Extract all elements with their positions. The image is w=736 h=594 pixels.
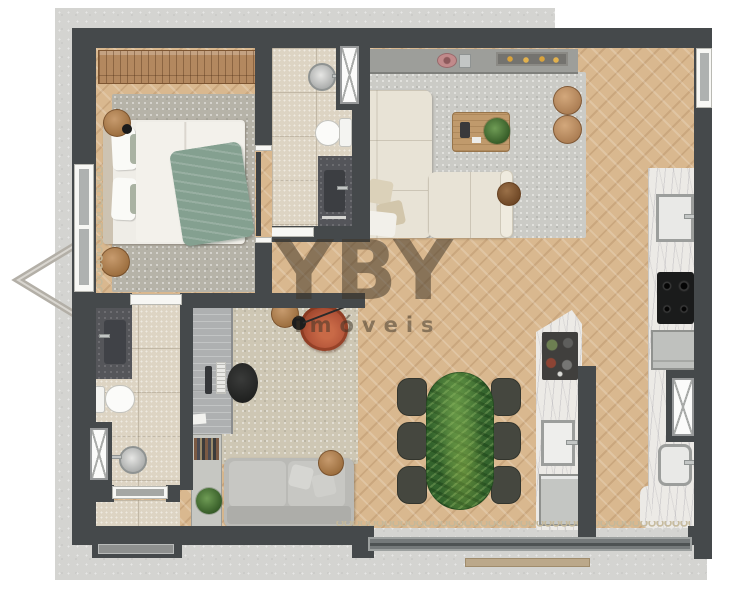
wall-top — [72, 28, 712, 48]
keyboard — [216, 362, 226, 394]
ventilation-shaft — [90, 428, 108, 480]
deck-plank — [465, 558, 590, 567]
balcony-curtain — [336, 521, 690, 528]
dining-chair — [491, 466, 521, 504]
green-throw — [169, 141, 255, 247]
side-table — [497, 182, 521, 206]
shower-handle — [99, 334, 110, 338]
lounge-chair — [300, 305, 348, 351]
towel-rail — [322, 216, 346, 219]
wall-bedroom-office-a — [72, 293, 132, 308]
entrance-arrow-icon — [8, 240, 80, 320]
window-glass — [79, 229, 89, 285]
bedroom-curtain — [97, 166, 104, 292]
monitor — [205, 366, 212, 394]
dining-chair — [491, 422, 521, 460]
papers — [192, 413, 207, 424]
dining-chair — [397, 466, 427, 504]
wall-bathroom2-bottom-b — [166, 485, 180, 502]
bedside-stool — [100, 247, 130, 277]
toilet-tank — [339, 118, 352, 147]
shelf-plant — [196, 488, 222, 514]
bathroom-sink — [119, 446, 147, 474]
decor-tray-gold — [496, 52, 568, 66]
door-jamb — [255, 145, 272, 151]
wall-bathroom-office — [180, 300, 193, 490]
loveseat-back — [227, 506, 351, 524]
island-sink-faucet — [566, 440, 578, 445]
entrance-door — [98, 544, 174, 554]
pouf — [553, 115, 582, 144]
door-threshold-bathroom2 — [130, 294, 182, 305]
dining-chair — [397, 422, 427, 460]
wardrobe — [98, 50, 256, 84]
window-glass — [79, 169, 89, 225]
bedroom-door-leaf — [256, 152, 261, 236]
dining-chair — [491, 378, 521, 416]
dining-table — [426, 372, 494, 510]
entry-floor — [94, 500, 180, 528]
window-glass — [700, 53, 709, 101]
wall-bathroom2-bottom-a — [94, 485, 114, 502]
loveseat-cushion — [229, 461, 286, 507]
bar-tray — [542, 332, 578, 380]
toilet — [105, 385, 135, 413]
books — [194, 438, 219, 460]
dishwasher — [539, 474, 581, 526]
ventilation-shaft — [340, 46, 359, 104]
loveseat-pillow — [311, 472, 337, 498]
decor-book — [472, 137, 481, 143]
cooktop — [657, 272, 694, 324]
island-partition-wall — [578, 366, 596, 542]
vanity-faucet — [337, 186, 348, 190]
ventilation-shaft — [672, 378, 694, 436]
office-side-table — [318, 450, 344, 476]
doormat — [116, 489, 164, 496]
office-chair — [227, 363, 258, 403]
oven — [651, 330, 696, 370]
pouf — [553, 86, 582, 115]
shower-tray — [104, 320, 126, 364]
dining-chair — [397, 378, 427, 416]
decor-dish — [437, 53, 457, 68]
door-jamb — [255, 237, 272, 243]
monstera-plant — [484, 118, 510, 144]
decor-vase — [460, 122, 470, 138]
decor-frame — [459, 54, 471, 68]
wall-bedroom-office-b — [180, 293, 365, 308]
vanity-basin — [324, 170, 345, 212]
decor-sphere — [122, 124, 132, 134]
kitchen-sink-2 — [658, 444, 692, 486]
toilet — [315, 120, 341, 146]
floor-plan: YBY imóveis — [0, 0, 736, 594]
door-threshold-bathroom1 — [270, 227, 314, 237]
balcony-sliding-door — [368, 537, 692, 551]
